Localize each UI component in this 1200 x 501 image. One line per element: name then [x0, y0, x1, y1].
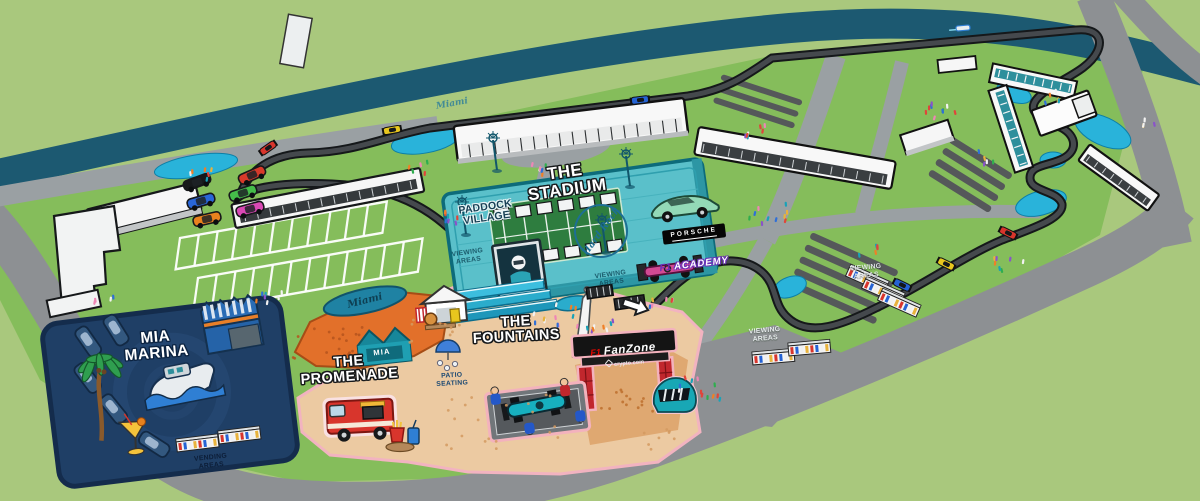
- burger-icon: [424, 313, 437, 326]
- drink-icon: [450, 309, 460, 323]
- f1-logo-icon: F1: [590, 347, 601, 358]
- f1-logo-icon: F1: [659, 262, 672, 274]
- crypto-logo-icon: [605, 359, 613, 367]
- venue-map: THE STADIUM PADDOCK VILLAGE MIA MARINA T…: [0, 0, 1200, 501]
- mia-stand-label: MIA: [373, 347, 391, 358]
- mia-marina-area: [40, 291, 299, 488]
- f1-car-icon: [631, 95, 650, 104]
- racing-helmet-icon: [654, 378, 696, 412]
- food-truck-icon: [324, 396, 396, 442]
